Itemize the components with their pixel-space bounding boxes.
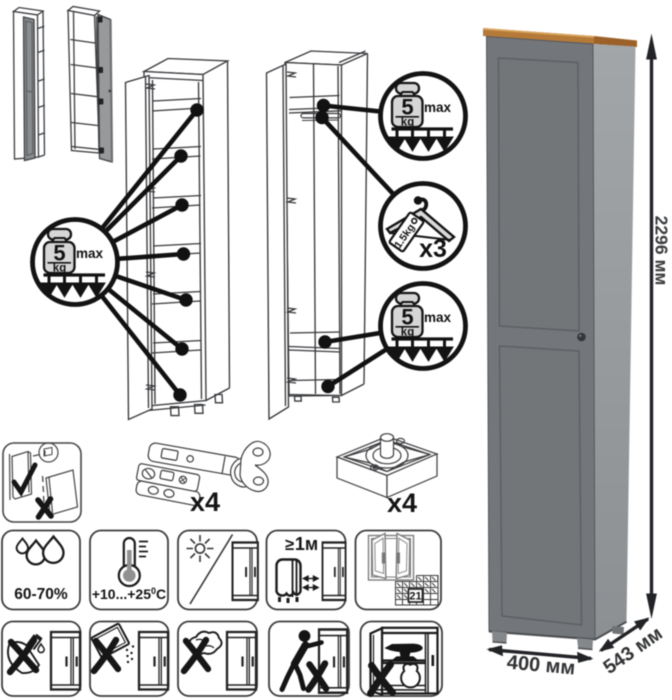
svg-text:1м: 1м [295, 534, 318, 554]
svg-text:2296 мм: 2296 мм [652, 216, 672, 286]
svg-text:≥: ≥ [285, 536, 294, 554]
svg-text:x4: x4 [190, 487, 220, 517]
svg-text:x4: x4 [387, 488, 417, 518]
svg-text:x3: x3 [419, 235, 447, 263]
svg-text:21: 21 [409, 591, 421, 603]
svg-text:60-70%: 60-70% [14, 586, 68, 603]
